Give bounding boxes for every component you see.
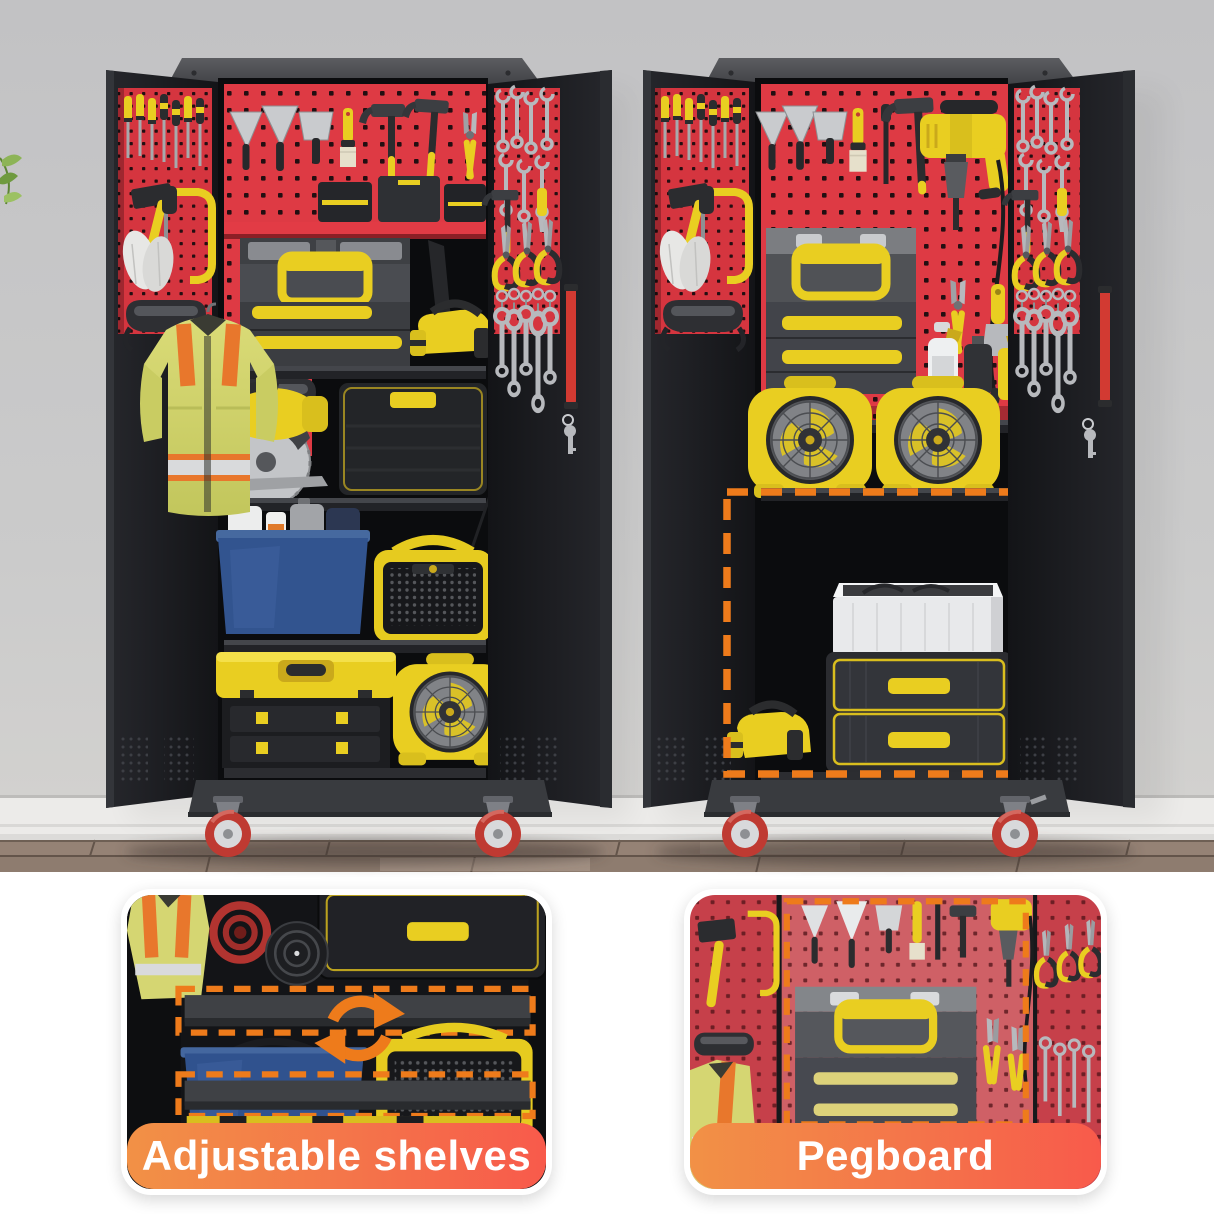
callout-pegboard: Pegboard (684, 889, 1107, 1195)
vent-perforation (1020, 734, 1046, 782)
two-drawer-chest (826, 652, 1012, 772)
storage-bin (216, 498, 370, 634)
portable-toolbox (766, 228, 916, 394)
right-door (1002, 70, 1135, 808)
red-shelf (224, 222, 486, 234)
right-door (482, 70, 612, 808)
white-storage-bin (833, 583, 1003, 655)
cabinet-scene (0, 0, 1214, 880)
portable-toolbox (795, 987, 976, 1127)
portable-fan (876, 376, 1000, 498)
vent-perforation (655, 736, 685, 784)
callout-adjustable-shelves: Adjustable shelves (121, 889, 552, 1195)
drawer-case (338, 382, 488, 496)
callout-label: Pegboard (690, 1123, 1101, 1189)
fan-spiral (266, 922, 328, 985)
right-cabinet (643, 58, 1135, 857)
cantilever-toolbox (216, 652, 396, 768)
left-door (643, 70, 755, 808)
left-cabinet (106, 58, 612, 857)
vent-perforation (500, 734, 526, 782)
canister (964, 336, 992, 394)
vent-perforation (534, 734, 560, 782)
cabinet-floor (224, 768, 486, 778)
page-bottom (0, 872, 1214, 880)
vent-perforation (1054, 734, 1080, 782)
vent-perforation (164, 736, 194, 784)
lower-shelf (185, 1081, 531, 1110)
shelf (224, 640, 486, 653)
safety-vest (127, 895, 209, 999)
door-handle (1100, 288, 1110, 404)
vent-perforation (118, 736, 148, 784)
callout-label: Adjustable shelves (127, 1123, 546, 1189)
portable-fan (748, 376, 872, 498)
safety-goggles (694, 1033, 754, 1056)
product-image: Adjustable shelves (0, 0, 1214, 1214)
portable-toolbox (240, 238, 410, 366)
door-handle (566, 286, 576, 406)
left-cabinet-floor-shadow (125, 839, 605, 865)
drawer-case (318, 895, 546, 978)
